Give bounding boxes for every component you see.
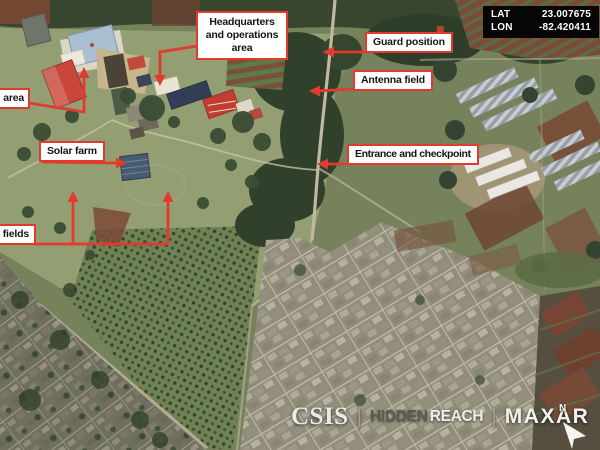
lon-value: -82.420411 [539,22,591,35]
annotation-headquarters: Headquarters and operations area [196,11,288,60]
lon-label: LON [491,22,513,35]
annotated-satellite-view: Headquarters and operations area Guard p… [0,0,600,450]
hidden-reach-logo-light: REACH [430,408,484,426]
separator: | [357,405,362,429]
separator: | [491,405,496,429]
lat-label: LAT [491,9,510,22]
annotation-entrance-checkpoint: Entrance and checkpoint [347,144,479,165]
hidden-reach-logo-dark: HIDDEN [370,408,428,426]
maxar-logo: MAXAR [505,405,590,429]
annotation-antenna-field: Antenna field [353,70,433,91]
annotation-fields-partial: fields [0,224,36,245]
credits-bar: CSIS | HIDDEN REACH | MAXAR [291,403,589,431]
north-label: N [559,403,566,414]
annotation-solar-farm: Solar farm [39,141,105,162]
annotation-arrows [0,0,600,450]
annotation-guard-position: Guard position [365,32,453,53]
annotation-area-partial: area [0,88,30,109]
lat-value: 23.007675 [542,9,591,22]
longitude-row: LON -82.420411 [491,22,591,35]
csis-logo: CSIS [291,403,349,431]
coordinates-display: LAT 23.007675 LON -82.420411 [483,6,599,38]
latitude-row: LAT 23.007675 [491,9,591,22]
